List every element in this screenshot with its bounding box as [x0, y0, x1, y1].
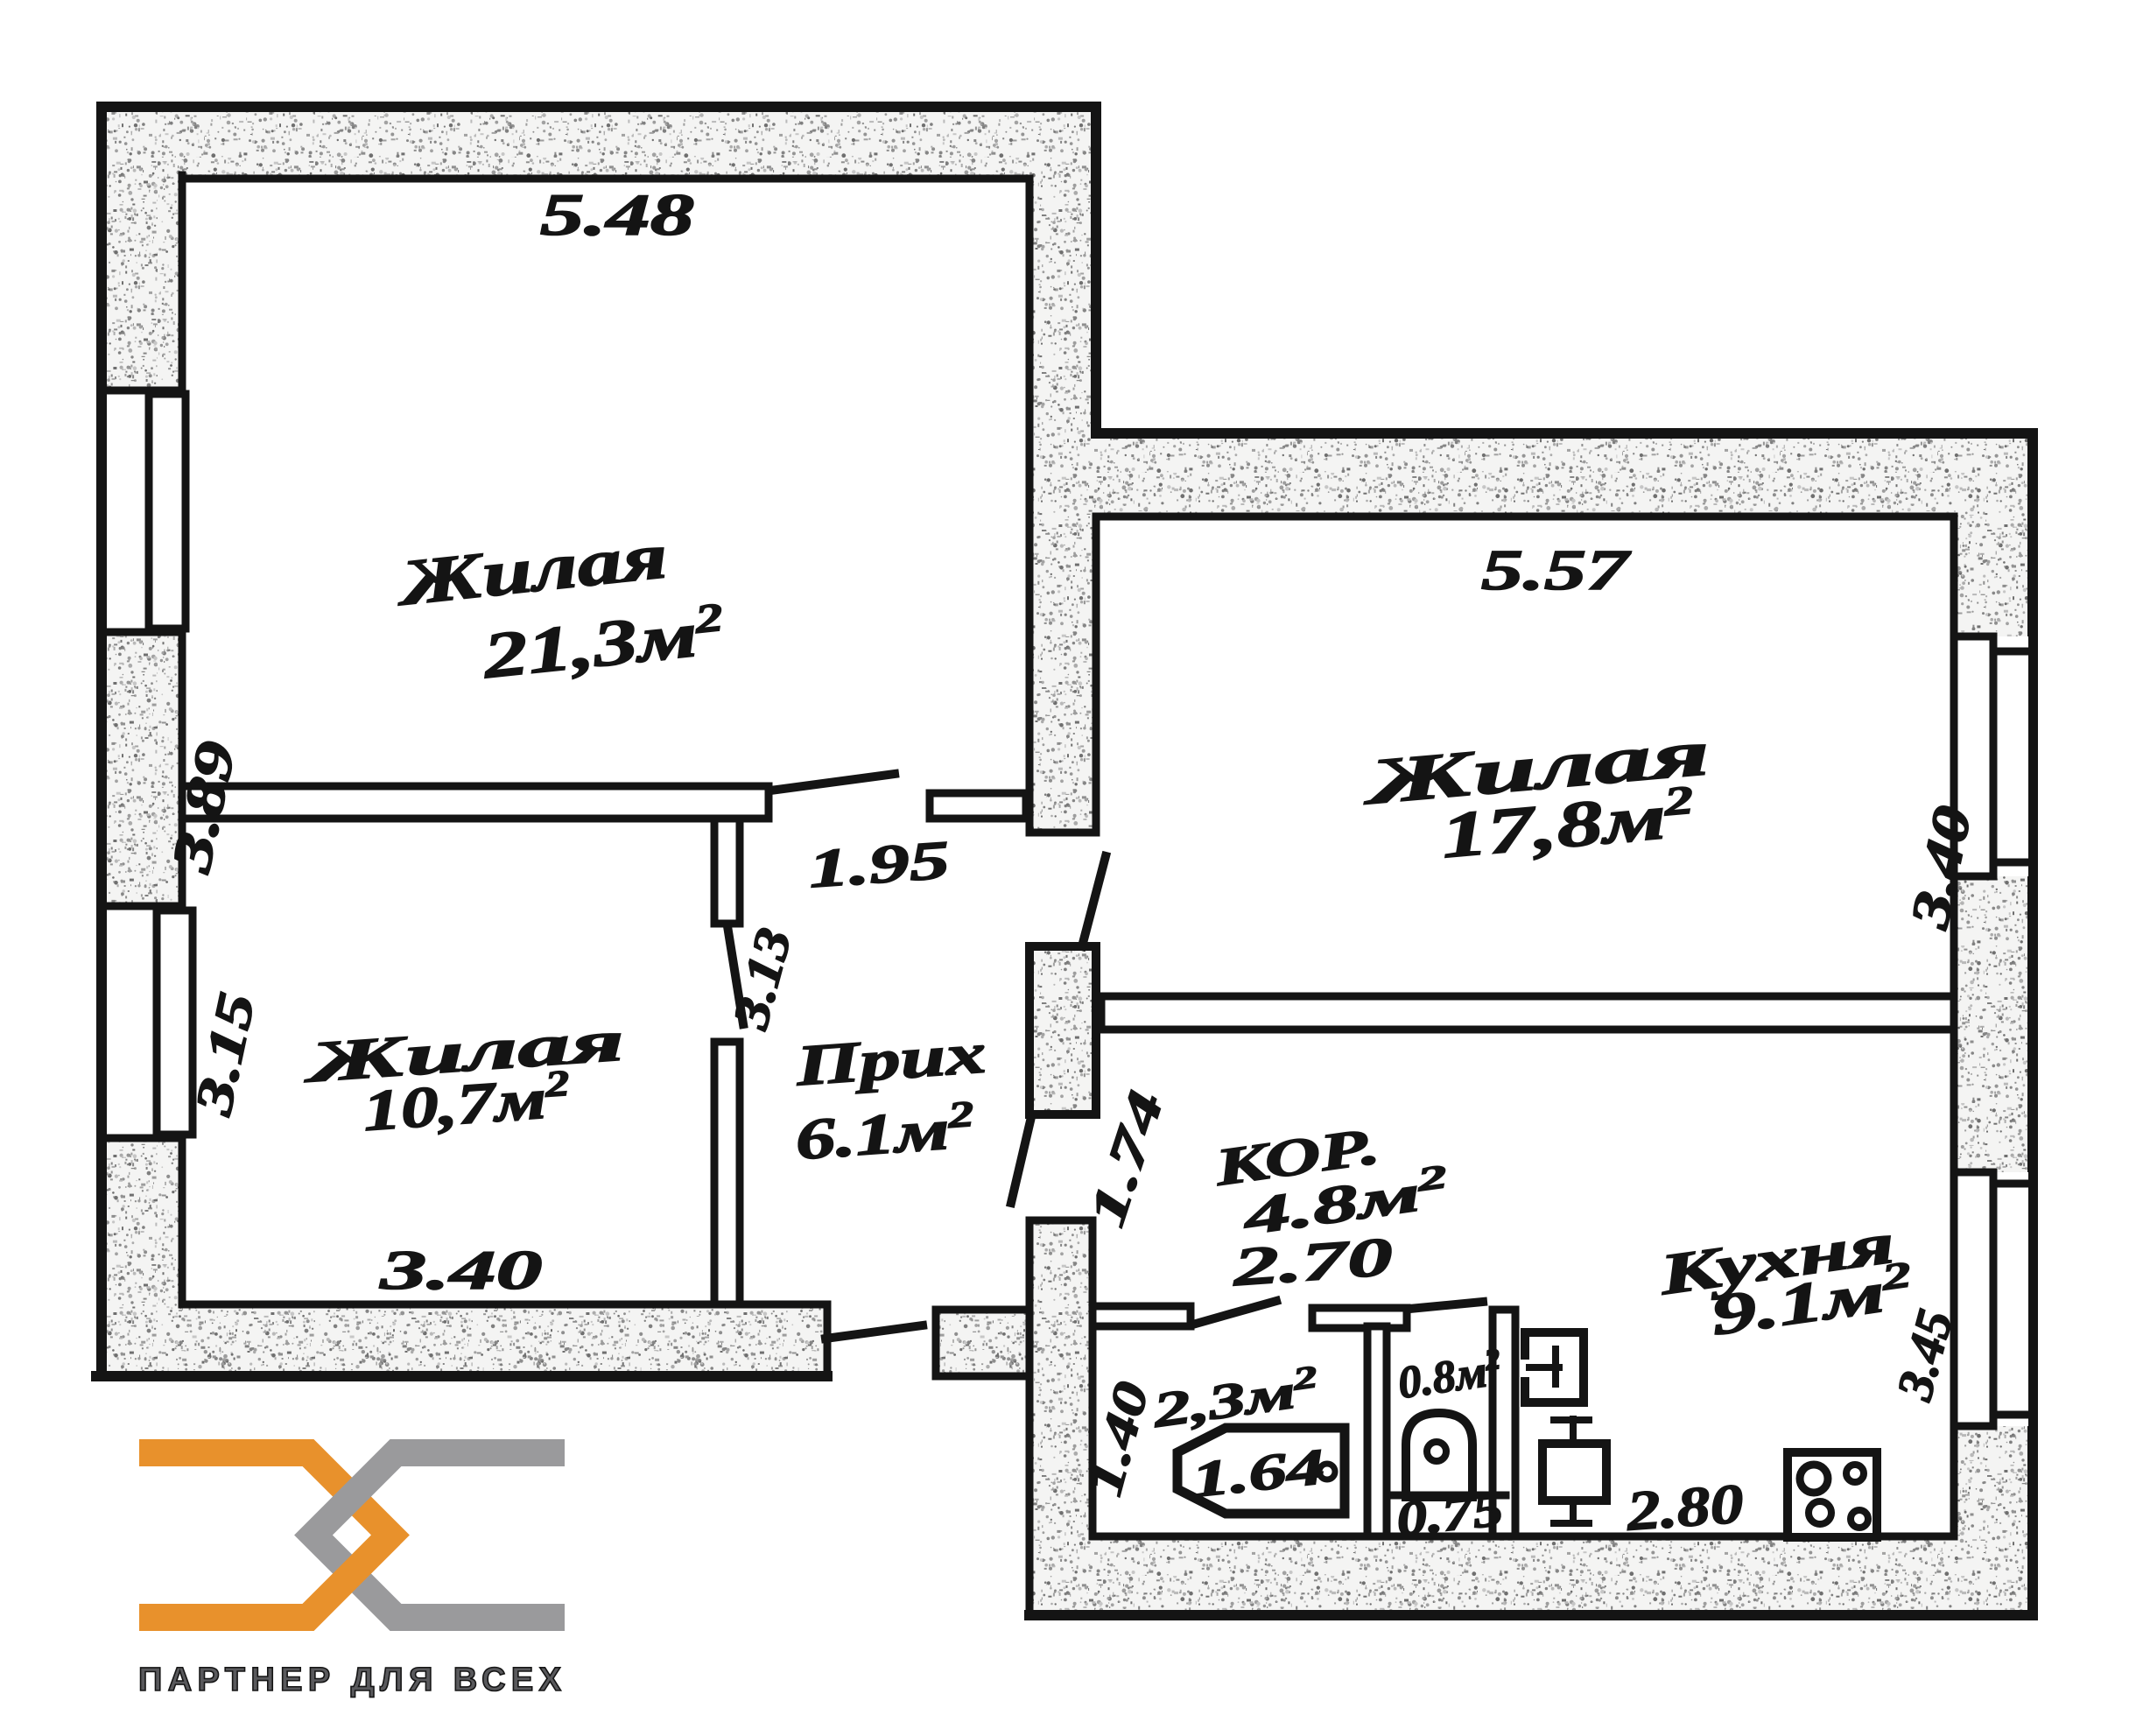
svg-text:1.95: 1.95 — [806, 830, 951, 899]
svg-text:5.57: 5.57 — [1481, 538, 1632, 602]
svg-text:5.48: 5.48 — [540, 181, 694, 248]
svg-text:ПАРТНЕР ДЛЯ ВСЕХ: ПАРТНЕР ДЛЯ ВСЕХ — [138, 1662, 565, 1698]
svg-text:3.40: 3.40 — [379, 1239, 543, 1301]
svg-text:0.8м2: 0.8м2 — [1395, 1343, 1505, 1409]
svg-text:21,3м2: 21,3м2 — [479, 594, 728, 693]
svg-text:2.80: 2.80 — [1624, 1472, 1746, 1542]
svg-text:Прих: Прих — [793, 1022, 988, 1099]
svg-text:2.70: 2.70 — [1230, 1227, 1395, 1298]
svg-text:0.75: 0.75 — [1394, 1482, 1506, 1547]
svg-text:6.1м2: 6.1м2 — [793, 1094, 977, 1172]
